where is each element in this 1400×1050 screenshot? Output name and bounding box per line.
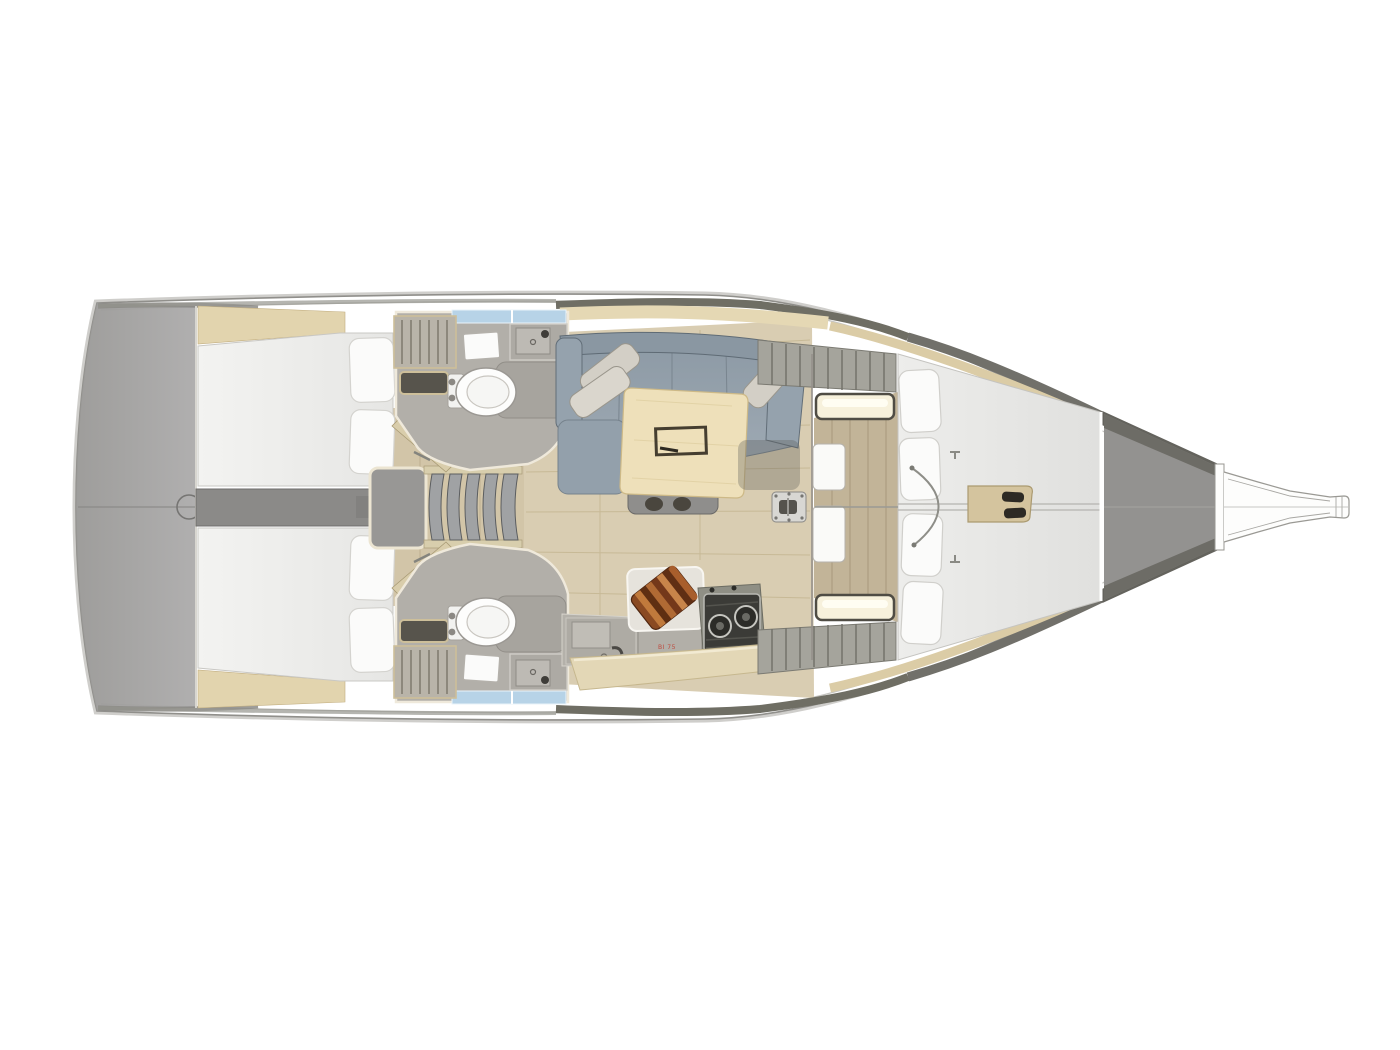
pedestal-foot xyxy=(645,497,663,511)
sofa-chaise xyxy=(558,420,626,494)
mirror xyxy=(463,654,500,682)
mast-step-plate xyxy=(772,492,806,522)
engine-box xyxy=(370,468,426,548)
berth-pillow xyxy=(901,513,943,576)
berth-pillow xyxy=(349,409,395,474)
console-handle xyxy=(1002,491,1024,502)
toilet-seat xyxy=(467,376,509,408)
burner-cap xyxy=(716,622,724,630)
berth-pillow xyxy=(349,337,395,402)
berth-pillow xyxy=(898,369,941,433)
toilet-button xyxy=(449,395,456,402)
locker-window xyxy=(400,620,448,642)
burner-cap xyxy=(742,613,750,621)
shower-glass xyxy=(452,691,566,704)
toilet-button xyxy=(449,613,456,620)
port-aft-cabin xyxy=(198,306,395,486)
engine-spine xyxy=(196,489,372,526)
cabin-door-panel xyxy=(813,506,845,562)
bowsprit xyxy=(1224,472,1349,542)
toilet-button xyxy=(449,379,456,386)
rail-fitting xyxy=(912,543,917,548)
rail-fitting xyxy=(910,466,915,471)
mirror xyxy=(463,332,500,360)
locker-window xyxy=(400,372,448,394)
toilet-button xyxy=(449,629,456,636)
sink-faucet xyxy=(541,676,549,684)
berth-pillow xyxy=(900,581,943,645)
console-handle xyxy=(1004,507,1026,518)
skylight-shadow xyxy=(738,440,800,490)
cabin-door-panel xyxy=(813,444,845,490)
starboard-aft-cabin xyxy=(198,528,395,708)
fridge-label: BI 75 xyxy=(658,644,676,651)
stove-knob xyxy=(732,586,737,591)
companionway-stairs xyxy=(424,466,522,548)
shelf-light-glow xyxy=(822,399,888,407)
toilet-seat xyxy=(467,606,509,638)
shower-glass xyxy=(452,310,566,323)
stove-knob xyxy=(710,588,715,593)
starboard-head xyxy=(394,544,568,704)
saloon-table xyxy=(620,388,748,514)
berth-pillow xyxy=(349,607,395,672)
sink-lid xyxy=(572,622,610,648)
boat-floor-plan: BI 75 xyxy=(0,0,1400,1050)
sink-faucet xyxy=(541,330,549,338)
shelf-light-glow xyxy=(822,600,888,608)
port-head xyxy=(394,310,568,470)
bow-bulkhead xyxy=(1215,464,1224,550)
anchor-locker-foredeck xyxy=(1104,414,1224,600)
floor-plan-svg: BI 75 xyxy=(0,0,1400,1050)
pedestal-foot xyxy=(673,497,691,511)
